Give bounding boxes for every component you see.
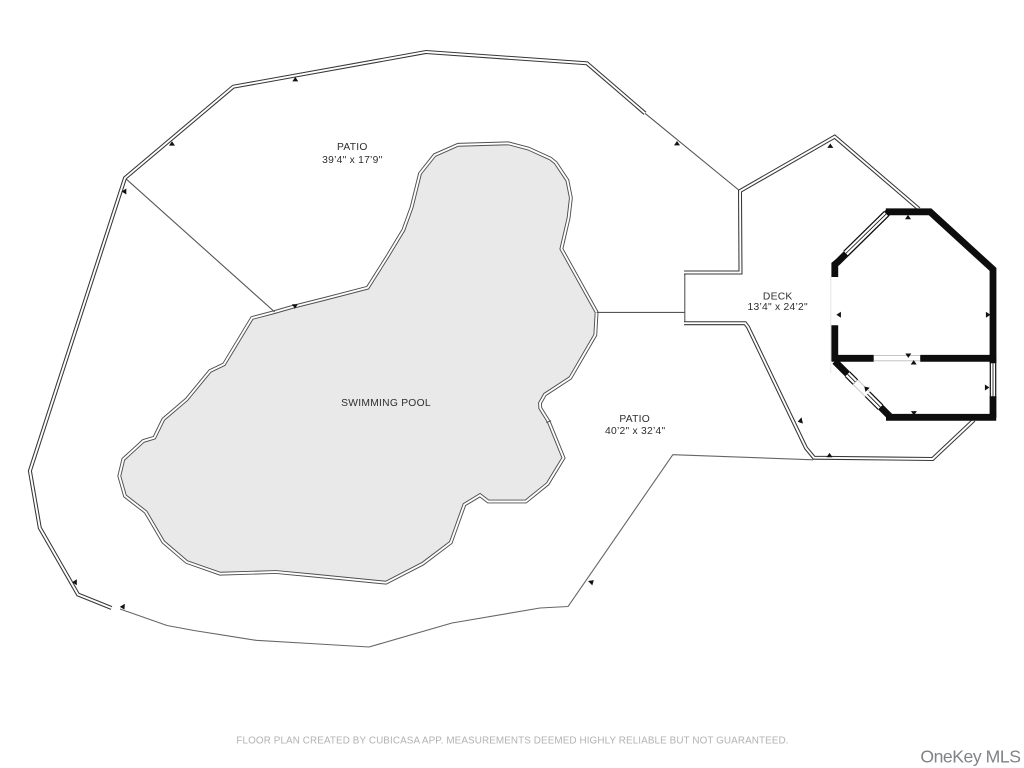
svg-text:SWIMMING POOL: SWIMMING POOL xyxy=(341,398,431,409)
svg-text:40’2" x 32’4": 40’2" x 32’4" xyxy=(605,426,665,437)
svg-text:13’4" x 24’2": 13’4" x 24’2" xyxy=(748,302,808,313)
svg-text:FLOOR PLAN CREATED BY CUBICASA: FLOOR PLAN CREATED BY CUBICASA APP. MEAS… xyxy=(236,736,788,747)
svg-text:PATIO: PATIO xyxy=(619,414,650,425)
svg-text:OneKey MLS: OneKey MLS xyxy=(920,747,1020,767)
svg-text:39’4" x 17’9": 39’4" x 17’9" xyxy=(322,155,382,166)
svg-text:PATIO: PATIO xyxy=(337,142,368,153)
